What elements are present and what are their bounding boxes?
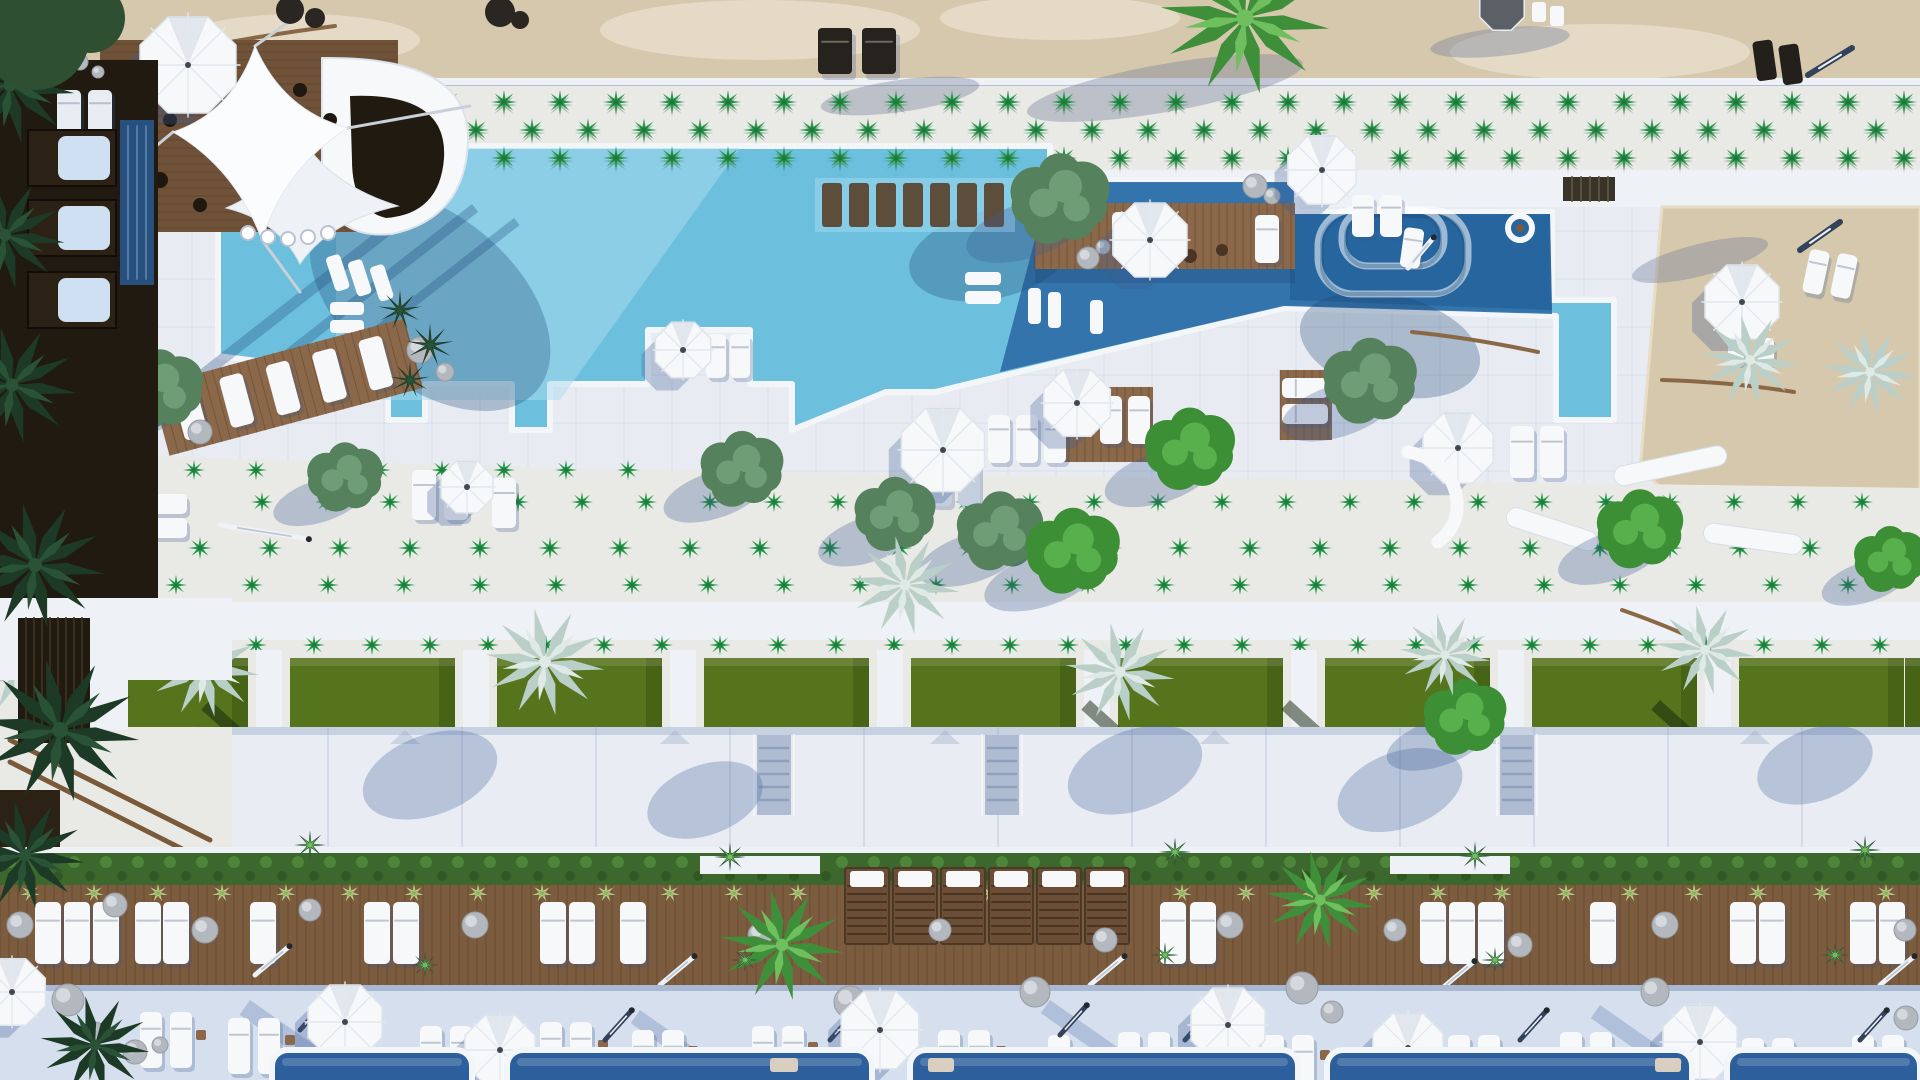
layer-bottom-pools	[272, 1050, 1920, 1080]
sun-lounger	[1730, 902, 1759, 968]
sun-lounger	[163, 902, 192, 968]
stone-pouf	[1384, 919, 1406, 941]
plunge-pool	[272, 1050, 472, 1080]
sun-lounger	[1759, 902, 1788, 968]
sun-lounger	[540, 902, 569, 968]
stone-pouf	[1894, 919, 1916, 941]
sun-lounger	[1510, 426, 1537, 482]
in-pool-lounger	[903, 183, 923, 227]
stone-pouf	[1243, 174, 1267, 198]
sun-lounger	[64, 902, 93, 968]
sun-lounger	[1380, 195, 1405, 241]
sun-lounger	[1850, 902, 1879, 968]
stone-pouf	[1093, 928, 1117, 952]
lawn-plot	[1904, 658, 1920, 728]
pergola	[1563, 177, 1615, 201]
lawn-plot	[1739, 658, 1904, 728]
cabana-daybed	[1037, 868, 1081, 944]
in-pool-bench	[1090, 300, 1103, 334]
plunge-pool	[910, 1050, 1298, 1080]
layer-wood-deck	[0, 868, 1920, 990]
stone-pouf	[192, 917, 218, 943]
in-pool-bench	[330, 302, 364, 315]
in-pool-lounger	[957, 183, 977, 227]
cabana-daybed	[845, 868, 889, 944]
cabana-bed	[28, 272, 116, 328]
sun-lounger	[492, 478, 519, 532]
stone-pouf	[1321, 1001, 1343, 1023]
stairwell	[754, 735, 794, 815]
sun-lounger	[1540, 426, 1567, 482]
sun-lounger	[35, 902, 64, 968]
sun-lounger	[1590, 902, 1619, 968]
stone-pouf	[152, 1037, 168, 1053]
in-pool-bench	[1048, 292, 1061, 328]
sun-lounger	[620, 902, 649, 968]
sun-lounger	[1420, 902, 1449, 968]
side-table	[196, 1030, 206, 1040]
stone-pouf	[52, 984, 84, 1016]
in-pool-lounger	[822, 183, 842, 227]
in-pool-lounger	[849, 183, 869, 227]
plunge-pool	[507, 1050, 872, 1080]
stone-pouf	[1286, 972, 1318, 1004]
sun-lounger	[228, 1018, 253, 1078]
stone-pouf	[1020, 977, 1050, 1007]
in-pool-bench	[965, 291, 1001, 304]
sun-lounger	[170, 1012, 195, 1072]
cabana-bed	[28, 200, 116, 256]
layer-rooftops	[0, 708, 1920, 858]
stone-pouf	[462, 912, 488, 938]
stone-pouf	[7, 912, 33, 938]
stone-pouf	[1508, 933, 1532, 957]
lawn-plot	[290, 658, 455, 728]
sun-lounger	[1352, 195, 1377, 241]
cabana-bed	[28, 130, 116, 186]
stone-pouf	[1077, 247, 1099, 269]
stone-pouf	[1652, 912, 1678, 938]
resort-aerial-render	[0, 0, 1920, 1080]
plunge-pool	[1327, 1050, 1692, 1080]
sun-lounger	[730, 334, 753, 382]
stone-pouf	[1894, 1006, 1918, 1030]
in-pool-lounger	[930, 183, 950, 227]
stone-pouf	[92, 66, 104, 78]
plunge-pool	[1727, 1050, 1920, 1080]
sun-lounger	[135, 902, 164, 968]
sun-lounger	[364, 902, 393, 968]
lawn-plot	[911, 658, 1076, 728]
stairwell	[982, 735, 1022, 815]
sun-lounger	[1255, 215, 1282, 267]
stairwell	[1497, 735, 1537, 815]
sun-lounger	[1190, 902, 1219, 968]
sun-lounger	[569, 902, 598, 968]
sun-lounger	[988, 415, 1013, 467]
in-pool-bench	[1028, 288, 1041, 324]
stone-pouf	[103, 893, 127, 917]
resort-scene-canvas	[0, 0, 1920, 1080]
stone-pouf	[1217, 912, 1243, 938]
lawn-plot	[704, 658, 869, 728]
stone-pouf	[929, 919, 951, 941]
stone-pouf	[188, 420, 212, 444]
in-pool-bench	[965, 272, 1001, 285]
side-table	[285, 1035, 295, 1045]
stone-pouf	[436, 363, 454, 381]
stone-pouf	[1641, 978, 1669, 1006]
stone-pouf	[299, 899, 321, 921]
cabana-daybed	[989, 868, 1033, 944]
in-pool-lounger	[876, 183, 896, 227]
sun-lounger	[1449, 902, 1478, 968]
